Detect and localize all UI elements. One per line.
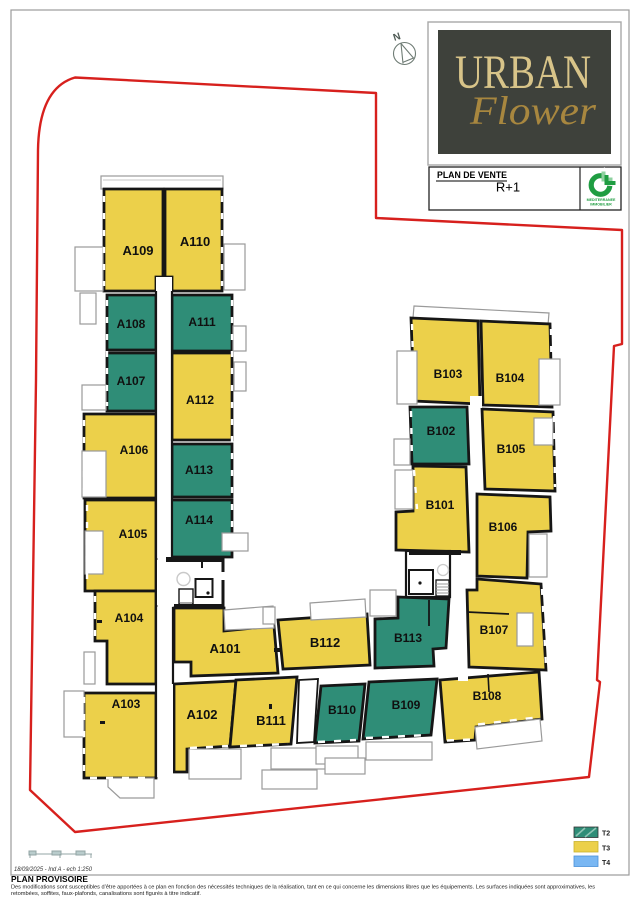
svg-text:B113: B113 xyxy=(394,631,422,645)
svg-text:A114: A114 xyxy=(185,513,213,527)
svg-text:A111: A111 xyxy=(188,315,216,329)
svg-text:Flower: Flower xyxy=(469,88,597,133)
svg-text:B108: B108 xyxy=(473,689,502,703)
svg-text:B103: B103 xyxy=(434,367,463,381)
svg-text:A112: A112 xyxy=(186,393,214,407)
svg-text:Des modifications sont suscept: Des modifications sont susceptibles d’êt… xyxy=(11,885,595,891)
svg-text:A101: A101 xyxy=(209,641,240,656)
svg-text:B111: B111 xyxy=(256,713,286,728)
svg-text:18/09/2025 - Ind A - ech 1:250: 18/09/2025 - Ind A - ech 1:250 xyxy=(14,866,92,873)
svg-text:A108: A108 xyxy=(117,317,146,331)
svg-text:PLAN PROVISOIRE: PLAN PROVISOIRE xyxy=(11,874,88,884)
svg-text:A113: A113 xyxy=(185,463,213,477)
svg-text:B105: B105 xyxy=(497,442,526,456)
svg-text:B102: B102 xyxy=(427,424,456,438)
svg-text:A107: A107 xyxy=(117,374,146,388)
svg-text:A102: A102 xyxy=(186,707,217,722)
svg-text:B110: B110 xyxy=(328,703,356,717)
svg-text:T3: T3 xyxy=(602,846,610,853)
svg-text:B112: B112 xyxy=(310,635,340,650)
svg-text:retombées, soffites, faux-plaf: retombées, soffites, faux-plafonds, cana… xyxy=(11,891,201,897)
svg-text:A109: A109 xyxy=(122,243,153,258)
svg-text:T2: T2 xyxy=(602,831,610,838)
svg-text:A106: A106 xyxy=(120,443,149,457)
svg-text:A110: A110 xyxy=(180,234,210,249)
svg-text:T4: T4 xyxy=(602,860,610,867)
svg-text:MEDITERRANEE: MEDITERRANEE xyxy=(587,198,616,202)
svg-text:B101: B101 xyxy=(426,498,455,512)
svg-text:B109: B109 xyxy=(392,698,421,712)
svg-text:IMMOBILIER: IMMOBILIER xyxy=(590,203,612,207)
svg-text:B107: B107 xyxy=(480,623,509,637)
svg-text:R+1: R+1 xyxy=(496,180,520,195)
svg-text:B106: B106 xyxy=(489,520,518,534)
svg-text:B104: B104 xyxy=(496,371,525,385)
svg-text:A104: A104 xyxy=(115,611,144,625)
svg-text:A105: A105 xyxy=(119,527,148,541)
svg-text:A103: A103 xyxy=(112,697,141,711)
